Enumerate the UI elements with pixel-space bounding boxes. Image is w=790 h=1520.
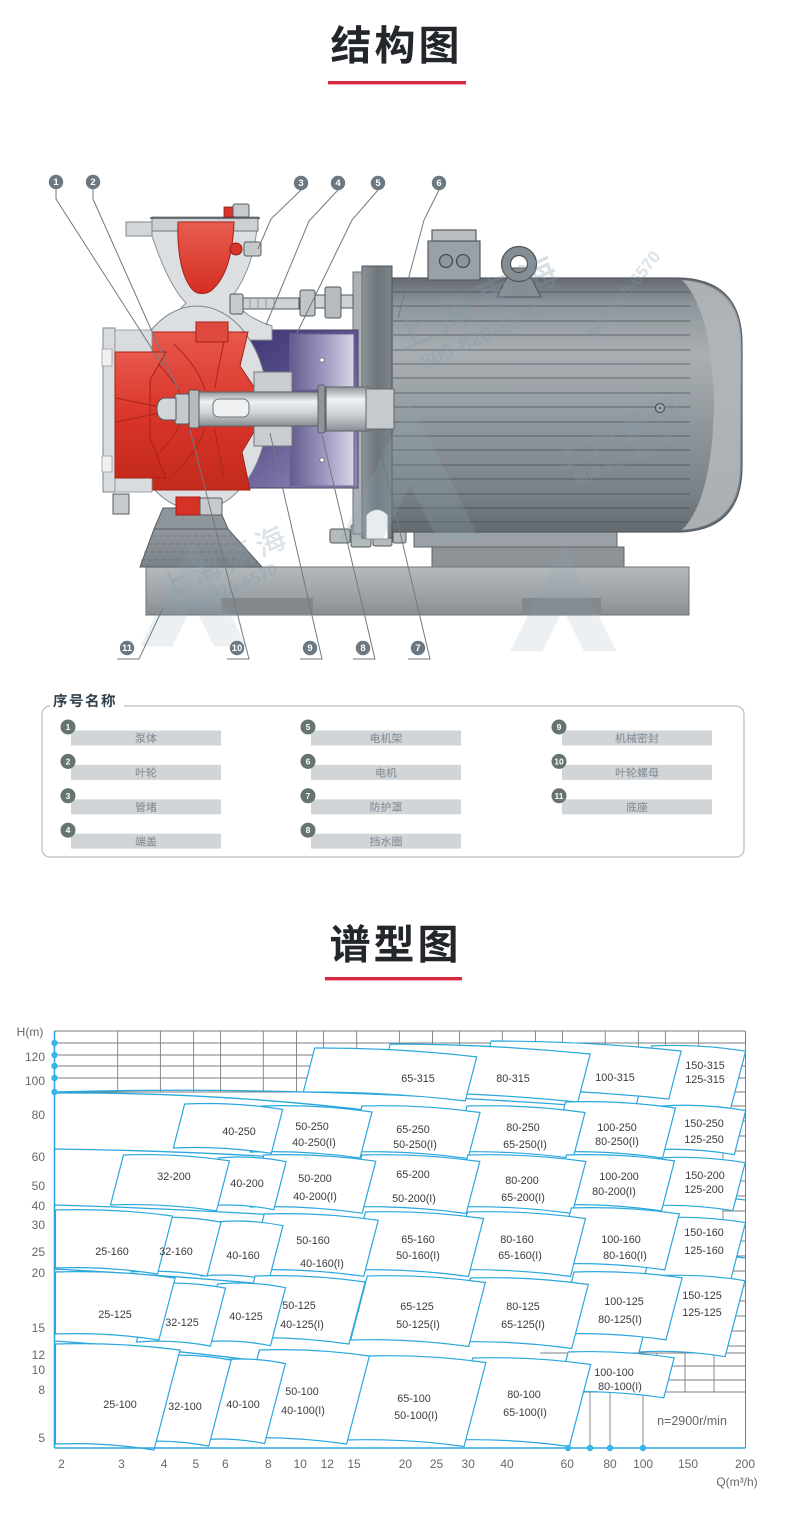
svg-text:2: 2 bbox=[58, 1457, 65, 1471]
svg-text:50-100(I): 50-100(I) bbox=[394, 1410, 438, 1422]
svg-text:65-160: 65-160 bbox=[401, 1234, 435, 1246]
svg-text:40-250(I): 40-250(I) bbox=[292, 1137, 336, 1149]
svg-text:10: 10 bbox=[232, 643, 243, 654]
svg-text:120: 120 bbox=[25, 1050, 45, 1064]
svg-text:65-100: 65-100 bbox=[397, 1393, 431, 1405]
svg-text:8: 8 bbox=[306, 825, 311, 835]
svg-text:40-125: 40-125 bbox=[229, 1311, 263, 1323]
svg-text:80: 80 bbox=[603, 1457, 617, 1471]
svg-text:12: 12 bbox=[321, 1457, 335, 1471]
svg-text:125-160: 125-160 bbox=[684, 1245, 724, 1257]
svg-text:25-125: 25-125 bbox=[98, 1309, 132, 1321]
svg-text:50-250(I): 50-250(I) bbox=[393, 1139, 437, 1151]
svg-text:100-315: 100-315 bbox=[595, 1072, 635, 1084]
svg-text:50-250: 50-250 bbox=[295, 1121, 329, 1133]
svg-text:65-315: 65-315 bbox=[401, 1073, 435, 1085]
svg-text:6: 6 bbox=[436, 178, 441, 189]
svg-text:100-160: 100-160 bbox=[601, 1234, 641, 1246]
svg-text:30: 30 bbox=[462, 1457, 476, 1471]
svg-text:20: 20 bbox=[32, 1266, 46, 1280]
svg-text:125-200: 125-200 bbox=[684, 1184, 724, 1196]
svg-text:40-100: 40-100 bbox=[226, 1399, 260, 1411]
svg-text:3: 3 bbox=[66, 791, 71, 801]
svg-text:80-200: 80-200 bbox=[505, 1175, 539, 1187]
svg-text:4: 4 bbox=[161, 1457, 168, 1471]
svg-text:100-125: 100-125 bbox=[604, 1296, 644, 1308]
svg-text:32-100: 32-100 bbox=[168, 1401, 202, 1413]
svg-text:15: 15 bbox=[32, 1321, 46, 1335]
svg-text:40-160(I): 40-160(I) bbox=[300, 1258, 344, 1270]
svg-text:2: 2 bbox=[66, 756, 71, 766]
svg-text:7: 7 bbox=[415, 643, 420, 654]
svg-text:1: 1 bbox=[66, 722, 71, 732]
svg-text:5: 5 bbox=[306, 722, 311, 732]
svg-text:9: 9 bbox=[557, 722, 562, 732]
svg-text:150-160: 150-160 bbox=[684, 1227, 724, 1239]
svg-text:65-250(I): 65-250(I) bbox=[503, 1139, 547, 1151]
svg-text:32-125: 32-125 bbox=[165, 1317, 199, 1329]
svg-text:40: 40 bbox=[32, 1199, 46, 1213]
svg-text:2: 2 bbox=[90, 177, 95, 188]
svg-text:25: 25 bbox=[430, 1457, 444, 1471]
svg-text:32-160: 32-160 bbox=[159, 1246, 193, 1258]
svg-text:50-100: 50-100 bbox=[285, 1386, 319, 1398]
svg-text:50-125(I): 50-125(I) bbox=[396, 1319, 440, 1331]
svg-text:Q(m³/h): Q(m³/h) bbox=[716, 1475, 757, 1489]
svg-text:80-200(I): 80-200(I) bbox=[592, 1186, 636, 1198]
svg-text:125-250: 125-250 bbox=[684, 1134, 724, 1146]
svg-text:40-250: 40-250 bbox=[222, 1126, 256, 1138]
svg-text:6: 6 bbox=[222, 1457, 229, 1471]
svg-text:8: 8 bbox=[38, 1383, 45, 1397]
svg-text:7: 7 bbox=[306, 791, 311, 801]
svg-text:150-250: 150-250 bbox=[684, 1118, 724, 1130]
svg-text:12: 12 bbox=[32, 1348, 46, 1362]
svg-text:100: 100 bbox=[25, 1074, 45, 1088]
svg-text:50-160(I): 50-160(I) bbox=[396, 1250, 440, 1262]
svg-text:200: 200 bbox=[735, 1457, 755, 1471]
svg-text:25: 25 bbox=[32, 1245, 46, 1259]
svg-text:10: 10 bbox=[32, 1363, 46, 1377]
svg-text:100-200: 100-200 bbox=[599, 1171, 639, 1183]
svg-text:125-315: 125-315 bbox=[685, 1074, 725, 1086]
svg-text:80-160: 80-160 bbox=[500, 1234, 534, 1246]
svg-text:60: 60 bbox=[32, 1150, 46, 1164]
svg-text:40-125(I): 40-125(I) bbox=[280, 1319, 324, 1331]
svg-text:9: 9 bbox=[307, 643, 312, 654]
svg-text:100: 100 bbox=[633, 1457, 653, 1471]
svg-text:11: 11 bbox=[122, 643, 133, 654]
svg-text:5: 5 bbox=[38, 1431, 45, 1445]
svg-text:80: 80 bbox=[32, 1108, 46, 1122]
svg-text:10: 10 bbox=[554, 756, 564, 766]
svg-text:80-250: 80-250 bbox=[506, 1122, 540, 1134]
svg-text:50: 50 bbox=[32, 1179, 46, 1193]
svg-text:40-100(I): 40-100(I) bbox=[281, 1405, 325, 1417]
svg-text:n=2900r/min: n=2900r/min bbox=[657, 1414, 727, 1428]
svg-text:65-125(I): 65-125(I) bbox=[501, 1319, 545, 1331]
svg-text:4: 4 bbox=[335, 178, 341, 189]
svg-text:25-100: 25-100 bbox=[103, 1399, 137, 1411]
svg-text:5: 5 bbox=[193, 1457, 200, 1471]
svg-text:30: 30 bbox=[32, 1218, 46, 1232]
svg-text:80-125: 80-125 bbox=[506, 1301, 540, 1313]
svg-text:80-100: 80-100 bbox=[507, 1389, 541, 1401]
svg-text:5: 5 bbox=[375, 178, 381, 189]
svg-text:4: 4 bbox=[66, 825, 71, 835]
svg-text:100-250: 100-250 bbox=[597, 1122, 637, 1134]
svg-text:80-160(I): 80-160(I) bbox=[603, 1250, 647, 1262]
svg-text:65-200: 65-200 bbox=[396, 1169, 430, 1181]
svg-text:40-200: 40-200 bbox=[230, 1178, 264, 1190]
svg-text:65-100(I): 65-100(I) bbox=[503, 1407, 547, 1419]
svg-text:1: 1 bbox=[53, 177, 59, 188]
svg-text:25-160: 25-160 bbox=[95, 1246, 129, 1258]
svg-text:6: 6 bbox=[306, 756, 311, 766]
svg-text:65-250: 65-250 bbox=[396, 1124, 430, 1136]
svg-text:20: 20 bbox=[399, 1457, 413, 1471]
svg-text:65-200(I): 65-200(I) bbox=[501, 1192, 545, 1204]
svg-text:8: 8 bbox=[360, 643, 365, 654]
svg-text:80-315: 80-315 bbox=[496, 1073, 530, 1085]
svg-text:10: 10 bbox=[294, 1457, 308, 1471]
svg-text:150-200: 150-200 bbox=[685, 1170, 725, 1182]
svg-text:40-200(I): 40-200(I) bbox=[293, 1191, 337, 1203]
svg-text:150-315: 150-315 bbox=[685, 1060, 725, 1072]
svg-text:3: 3 bbox=[118, 1457, 125, 1471]
svg-text:40-160: 40-160 bbox=[226, 1250, 260, 1262]
svg-text:50-160: 50-160 bbox=[296, 1235, 330, 1247]
svg-text:100-100: 100-100 bbox=[594, 1367, 634, 1379]
svg-text:50-200(I): 50-200(I) bbox=[392, 1193, 436, 1205]
svg-text:60: 60 bbox=[561, 1457, 575, 1471]
svg-text:50-200: 50-200 bbox=[298, 1173, 332, 1185]
svg-text:32-200: 32-200 bbox=[157, 1171, 191, 1183]
svg-text:11: 11 bbox=[555, 791, 564, 801]
svg-text:125-125: 125-125 bbox=[682, 1307, 722, 1319]
svg-text:65-125: 65-125 bbox=[400, 1301, 434, 1313]
svg-text:40: 40 bbox=[500, 1457, 514, 1471]
svg-text:80-125(I): 80-125(I) bbox=[598, 1314, 642, 1326]
svg-text:150-125: 150-125 bbox=[682, 1290, 722, 1302]
svg-text:50-125: 50-125 bbox=[282, 1300, 316, 1312]
svg-text:15: 15 bbox=[347, 1457, 361, 1471]
svg-text:8: 8 bbox=[265, 1457, 272, 1471]
svg-text:80-250(I): 80-250(I) bbox=[595, 1136, 639, 1148]
svg-text:3: 3 bbox=[298, 178, 303, 189]
svg-text:H(m): H(m) bbox=[17, 1025, 44, 1039]
svg-text:80-100(I): 80-100(I) bbox=[598, 1381, 642, 1393]
svg-text:65-160(I): 65-160(I) bbox=[498, 1250, 542, 1262]
svg-text:150: 150 bbox=[678, 1457, 698, 1471]
